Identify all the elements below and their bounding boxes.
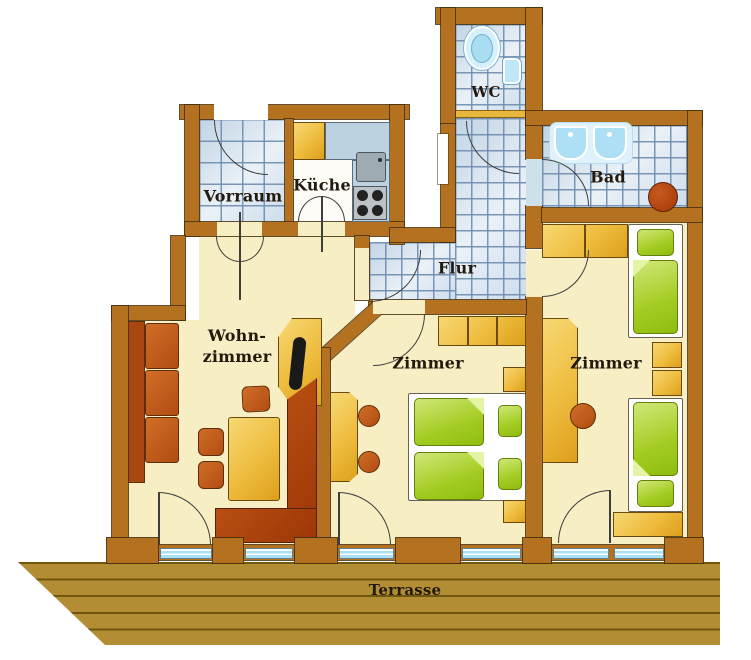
room-label-wohnzimmer-line1: Wohn- [203,325,272,346]
window [553,548,609,559]
room-label-zimmer-rechts: Zimmer [570,354,641,373]
door-leaf-terrace-zimmer [338,492,340,545]
room-label-bad: Bad [590,168,626,187]
chair [198,461,224,489]
desk [330,392,358,482]
wall-pier [295,538,337,563]
wall-exterior-right [688,111,702,563]
wall-wc-left [441,8,455,124]
wall-vorraum-kueche [285,119,293,222]
nightstand [652,342,682,368]
wall-vertical-main-lower [526,297,542,545]
mattress [414,398,484,446]
wall-bad-bottom [542,208,702,222]
wall-niche [438,134,448,184]
toilet-bowl [471,34,493,63]
window [160,548,212,559]
room-label-wohnzimmer-line2: zimmer [203,346,272,367]
desk-chair [358,451,380,473]
wc-threshold [455,110,526,118]
door-leaf-terrace-zimmer-rechts [609,490,611,543]
sofa-cushion [145,370,179,416]
pillow [498,405,522,437]
sofa-backrest [128,321,145,483]
blanket-fold [633,260,650,277]
desk-chair [570,403,596,429]
bath-stool [648,182,678,212]
window [614,548,664,559]
burner [372,190,383,201]
burner [357,190,368,201]
wardrobe [438,316,526,346]
wall-pier [107,538,158,563]
wardrobe-divider [467,317,469,345]
window [462,548,521,559]
faucet-dot [378,158,382,162]
chair [241,385,270,412]
desk-chair [358,405,380,427]
blanket [633,260,678,334]
door-opening-flur-zimmer-rechts [526,250,542,297]
room-label-kueche: Küche [293,176,351,195]
kitchen-sink [356,152,386,182]
blanket-fold [633,459,650,476]
door-leaf-vorraum [239,212,241,300]
wall-exterior-left [112,306,128,563]
floor-plan: Terrasse Vorraum Küche WC Bad Flur Wohn-… [0,0,751,660]
door-opening-wohn-flur [355,248,369,300]
wall-vertical-main-upper [526,8,542,159]
window [339,548,394,559]
wall-pier [213,538,243,563]
wall-flur-top [390,228,455,242]
wall-vertical-main-mid [526,206,542,248]
blanket [633,402,678,476]
entrance-opening [214,104,268,120]
basin-dot [568,132,573,137]
blanket-fold [467,452,484,469]
door-leaf-kueche [321,196,323,252]
room-label-terrasse: Terrasse [369,581,442,599]
sofa-cushion [145,323,179,369]
desk [542,318,578,463]
pillow [637,229,674,256]
sofa-cushion [145,417,179,463]
room-label-flur: Flur [438,259,476,278]
room-label-wc: WC [471,83,500,101]
burner [357,205,368,216]
kitchen-cabinet [293,122,325,160]
door-opening-flur-zimmer [373,300,425,314]
wc-sink [503,58,521,84]
pillow [637,480,674,507]
chair [198,428,224,456]
dining-table [228,417,280,501]
burner [372,205,383,216]
wall-block-left [185,105,199,236]
wardrobe-divider [496,317,498,345]
blanket-fold [467,398,484,415]
room-label-vorraum: Vorraum [204,187,283,206]
nightstand [652,370,682,396]
window [245,548,293,559]
room-label-wohnzimmer: Wohn- zimmer [203,325,272,367]
wall-pier [396,538,460,563]
nightstand [503,367,526,392]
terrace-deck: Terrasse [18,562,720,645]
basin-dot [607,132,612,137]
wall-pier [665,538,703,563]
mattress [414,452,484,500]
room-label-zimmer-mitte: Zimmer [392,354,463,373]
cabinet [613,512,683,537]
door-opening-bad [526,159,542,206]
pillow [498,458,522,490]
wall-pier [523,538,551,563]
corner-cabinet [503,500,526,523]
door-leaf-terrace-wohnzimmer [158,492,160,545]
